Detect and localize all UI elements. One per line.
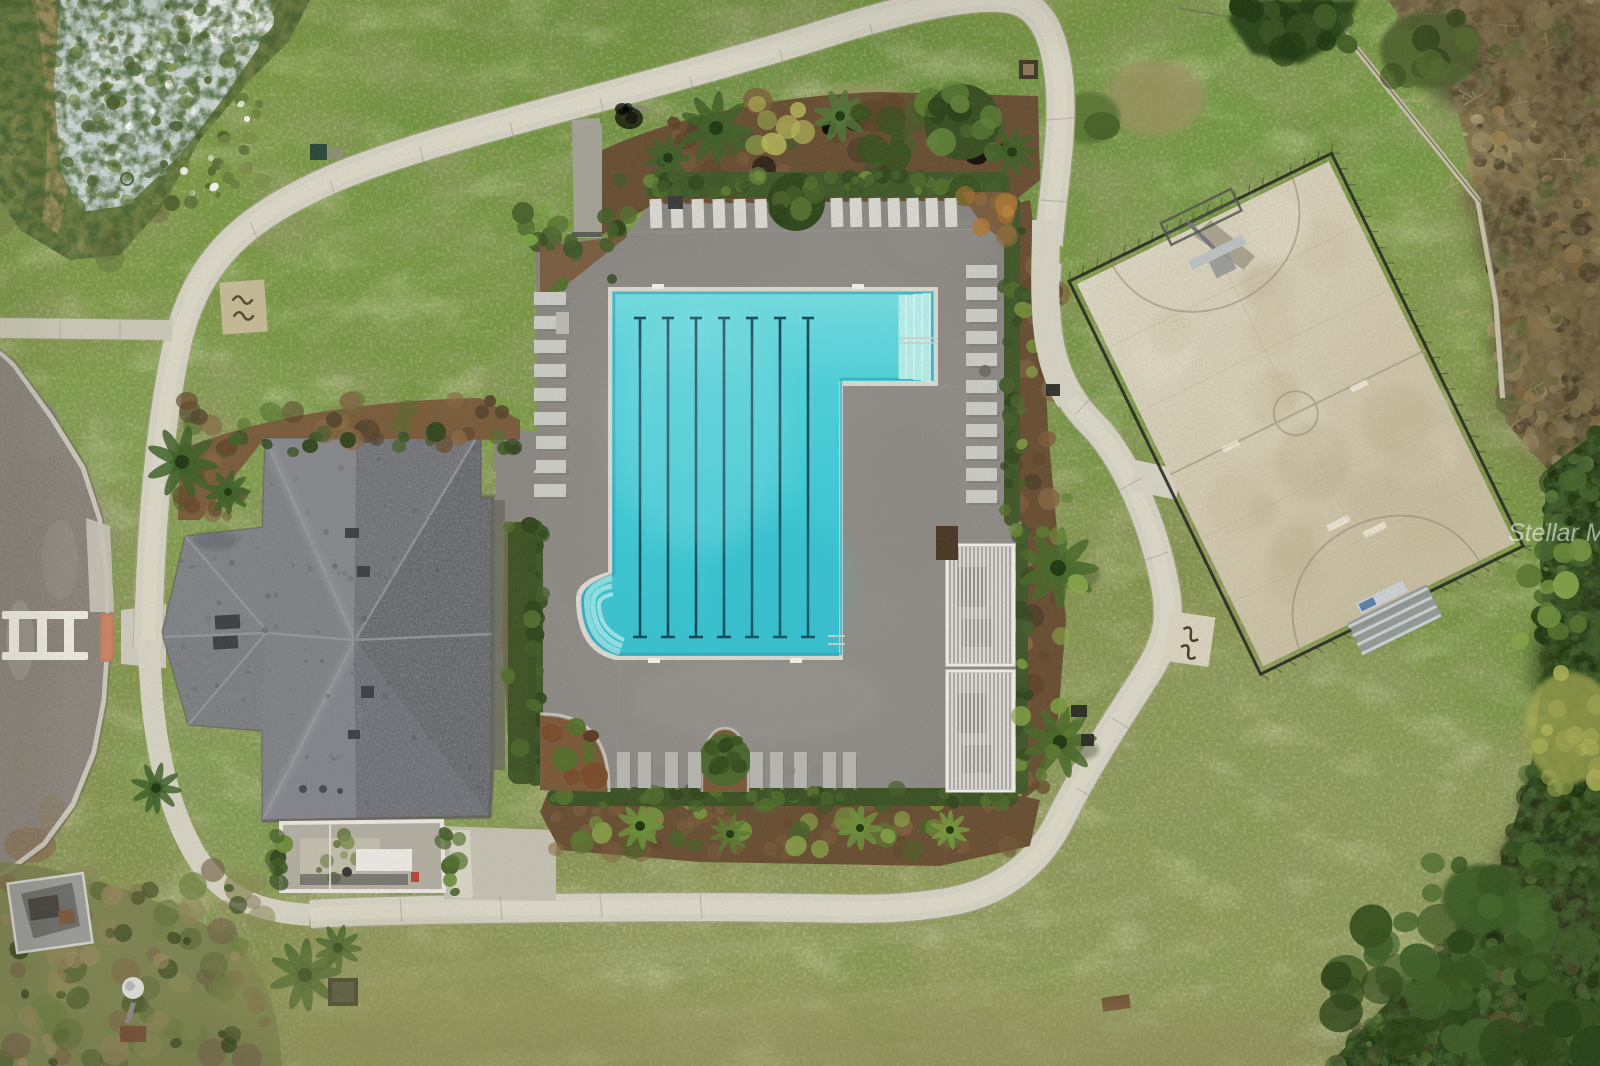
svg-text:Stellar MLS: Stellar MLS xyxy=(1508,519,1600,547)
